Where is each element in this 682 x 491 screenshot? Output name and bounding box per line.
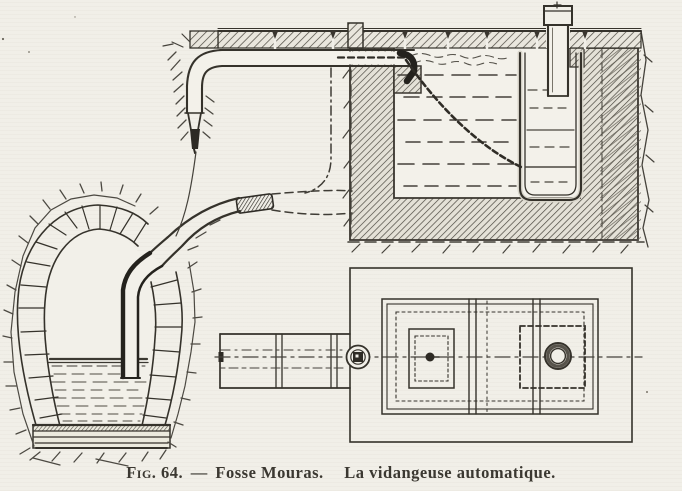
curb-stone xyxy=(348,23,363,48)
earth-right xyxy=(600,48,641,240)
caption-subtitle: La vidangeuse automatique. xyxy=(344,463,555,482)
hose-lower-edge xyxy=(162,211,240,266)
scanned-figure-page: Fig. 64. — Fosse Mouras. La vidangeuse a… xyxy=(0,0,682,491)
plan-valve-knob xyxy=(426,353,435,362)
tank-section-view xyxy=(163,2,654,253)
pull-rope xyxy=(176,152,196,236)
hose-coupling xyxy=(236,194,274,214)
plan-left-compartment xyxy=(409,329,454,388)
cesspool-vault-section xyxy=(3,182,220,466)
plan-discharge-channel xyxy=(219,334,351,388)
inlet-pipe xyxy=(544,2,572,96)
figure-caption: Fig. 64. — Fosse Mouras. La vidangeuse a… xyxy=(0,462,682,484)
foundation-base xyxy=(33,425,170,448)
pavement-end-block xyxy=(190,31,218,48)
engraving xyxy=(0,0,682,491)
flexible-hose xyxy=(150,68,352,266)
ground-rough-left xyxy=(163,34,190,47)
caption-fig-label: Fig. 64. xyxy=(126,463,183,482)
plan-view xyxy=(215,268,642,442)
downpipe-elbow xyxy=(168,50,222,153)
caption-separator: — xyxy=(191,463,208,482)
discharge-nozzle xyxy=(190,129,200,149)
plan-pipe-opening-right xyxy=(545,343,571,369)
hose-upper-edge xyxy=(150,198,239,253)
plan-pipe-opening-left xyxy=(347,346,370,369)
plan-outer-rectangle xyxy=(350,268,632,442)
caption-title: Fosse Mouras. xyxy=(215,463,323,482)
